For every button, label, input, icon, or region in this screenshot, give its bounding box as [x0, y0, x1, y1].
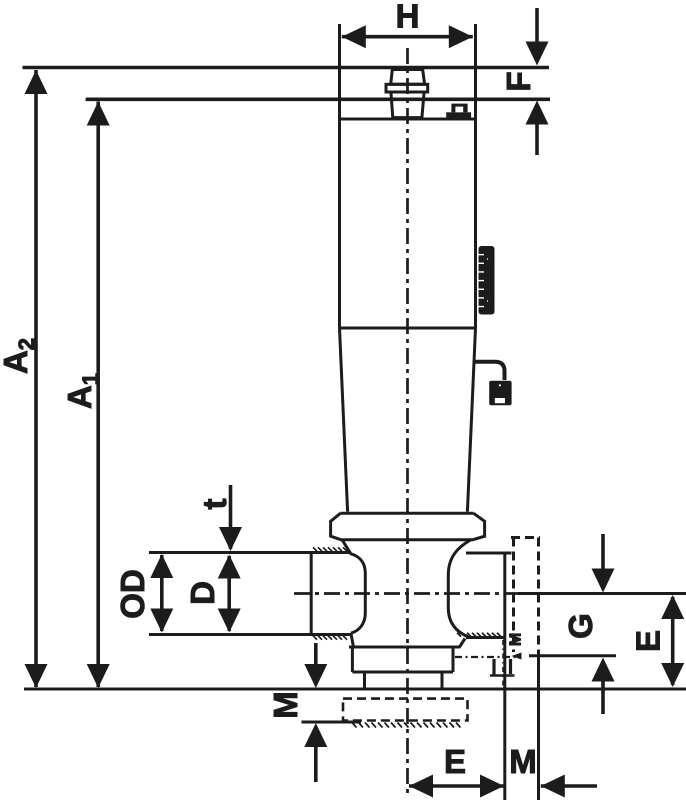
svg-text:E: E: [444, 743, 466, 780]
svg-text:D: D: [184, 581, 221, 605]
svg-text:M: M: [507, 633, 524, 646]
svg-text:E: E: [629, 630, 666, 652]
svg-text:G: G: [562, 613, 599, 639]
svg-text:M: M: [509, 743, 537, 780]
svg-text:H: H: [396, 0, 420, 34]
svg-text:OD: OD: [114, 569, 151, 619]
svg-text:A2: A2: [0, 338, 39, 374]
svg-text:F: F: [500, 71, 537, 91]
svg-text:M: M: [267, 691, 304, 719]
svg-text:A1: A1: [61, 373, 103, 409]
svg-text:t: t: [196, 499, 233, 510]
